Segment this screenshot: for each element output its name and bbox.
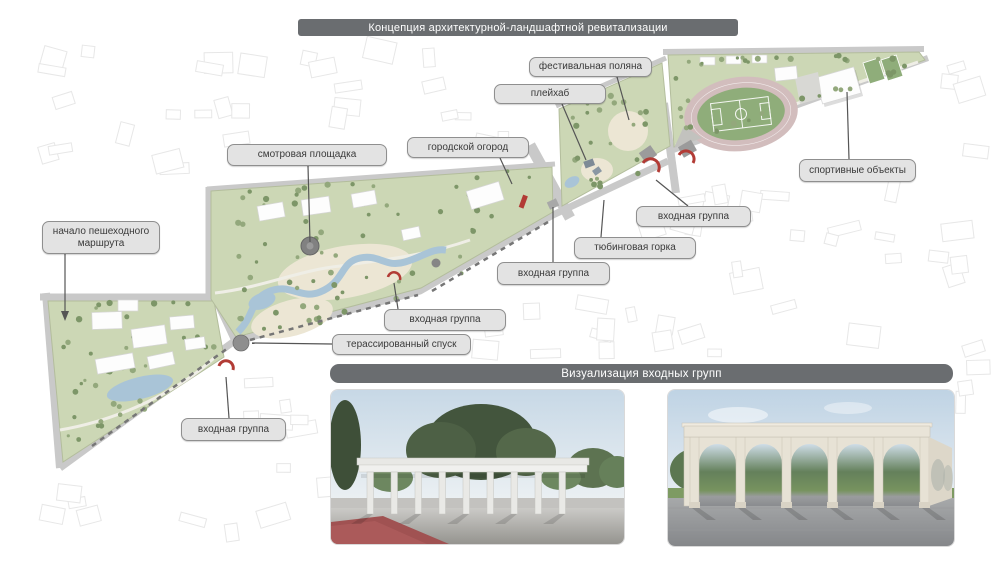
entrance-render-right <box>667 389 955 547</box>
callout-entrance-lower: входная группа <box>384 309 506 331</box>
street-d-top <box>663 49 924 52</box>
callout-entrance-bottom: входная группа <box>181 418 286 441</box>
callout-terraced-descent: терассированный спуск <box>332 334 471 355</box>
small-viewpoint-circle <box>432 259 441 268</box>
callout-entrance-top: входная группа <box>636 206 751 227</box>
pergola-roof <box>357 458 589 465</box>
callout-viewpoint: смотровая площадка <box>227 144 387 166</box>
terraced-descent-circle <box>233 335 249 351</box>
callout-tubing-hill: тюбинговая горка <box>574 237 696 259</box>
arcade-render <box>668 390 954 546</box>
visualization-title-text: Визуализация входных групп <box>561 368 722 380</box>
callout-route-start: начало пешеходного маршрута <box>42 221 160 254</box>
page-title-text: Концепция архитектурной-ландшафтной реви… <box>368 22 667 34</box>
page-title: Концепция архитектурной-ландшафтной реви… <box>298 19 738 36</box>
concept-board: Концепция архитектурной-ландшафтной реви… <box>0 0 1000 563</box>
visualization-title: Визуализация входных групп <box>330 364 953 383</box>
entrance-marker-bottom <box>219 361 233 370</box>
callout-city-garden: городской огород <box>407 137 529 158</box>
entablature <box>684 426 930 437</box>
entrance-render-left <box>330 389 625 545</box>
pergola-render <box>331 390 624 544</box>
callout-playhub: плейхаб <box>494 84 606 104</box>
callout-festival-glade: фестивальная поляна <box>529 57 652 77</box>
callout-entrance-mid: входная группа <box>497 262 610 285</box>
arch-openings <box>699 444 920 506</box>
callout-sport-objects: спортивные объекты <box>799 159 916 182</box>
pergola-columns <box>367 472 566 514</box>
arcade-structure <box>682 423 953 520</box>
